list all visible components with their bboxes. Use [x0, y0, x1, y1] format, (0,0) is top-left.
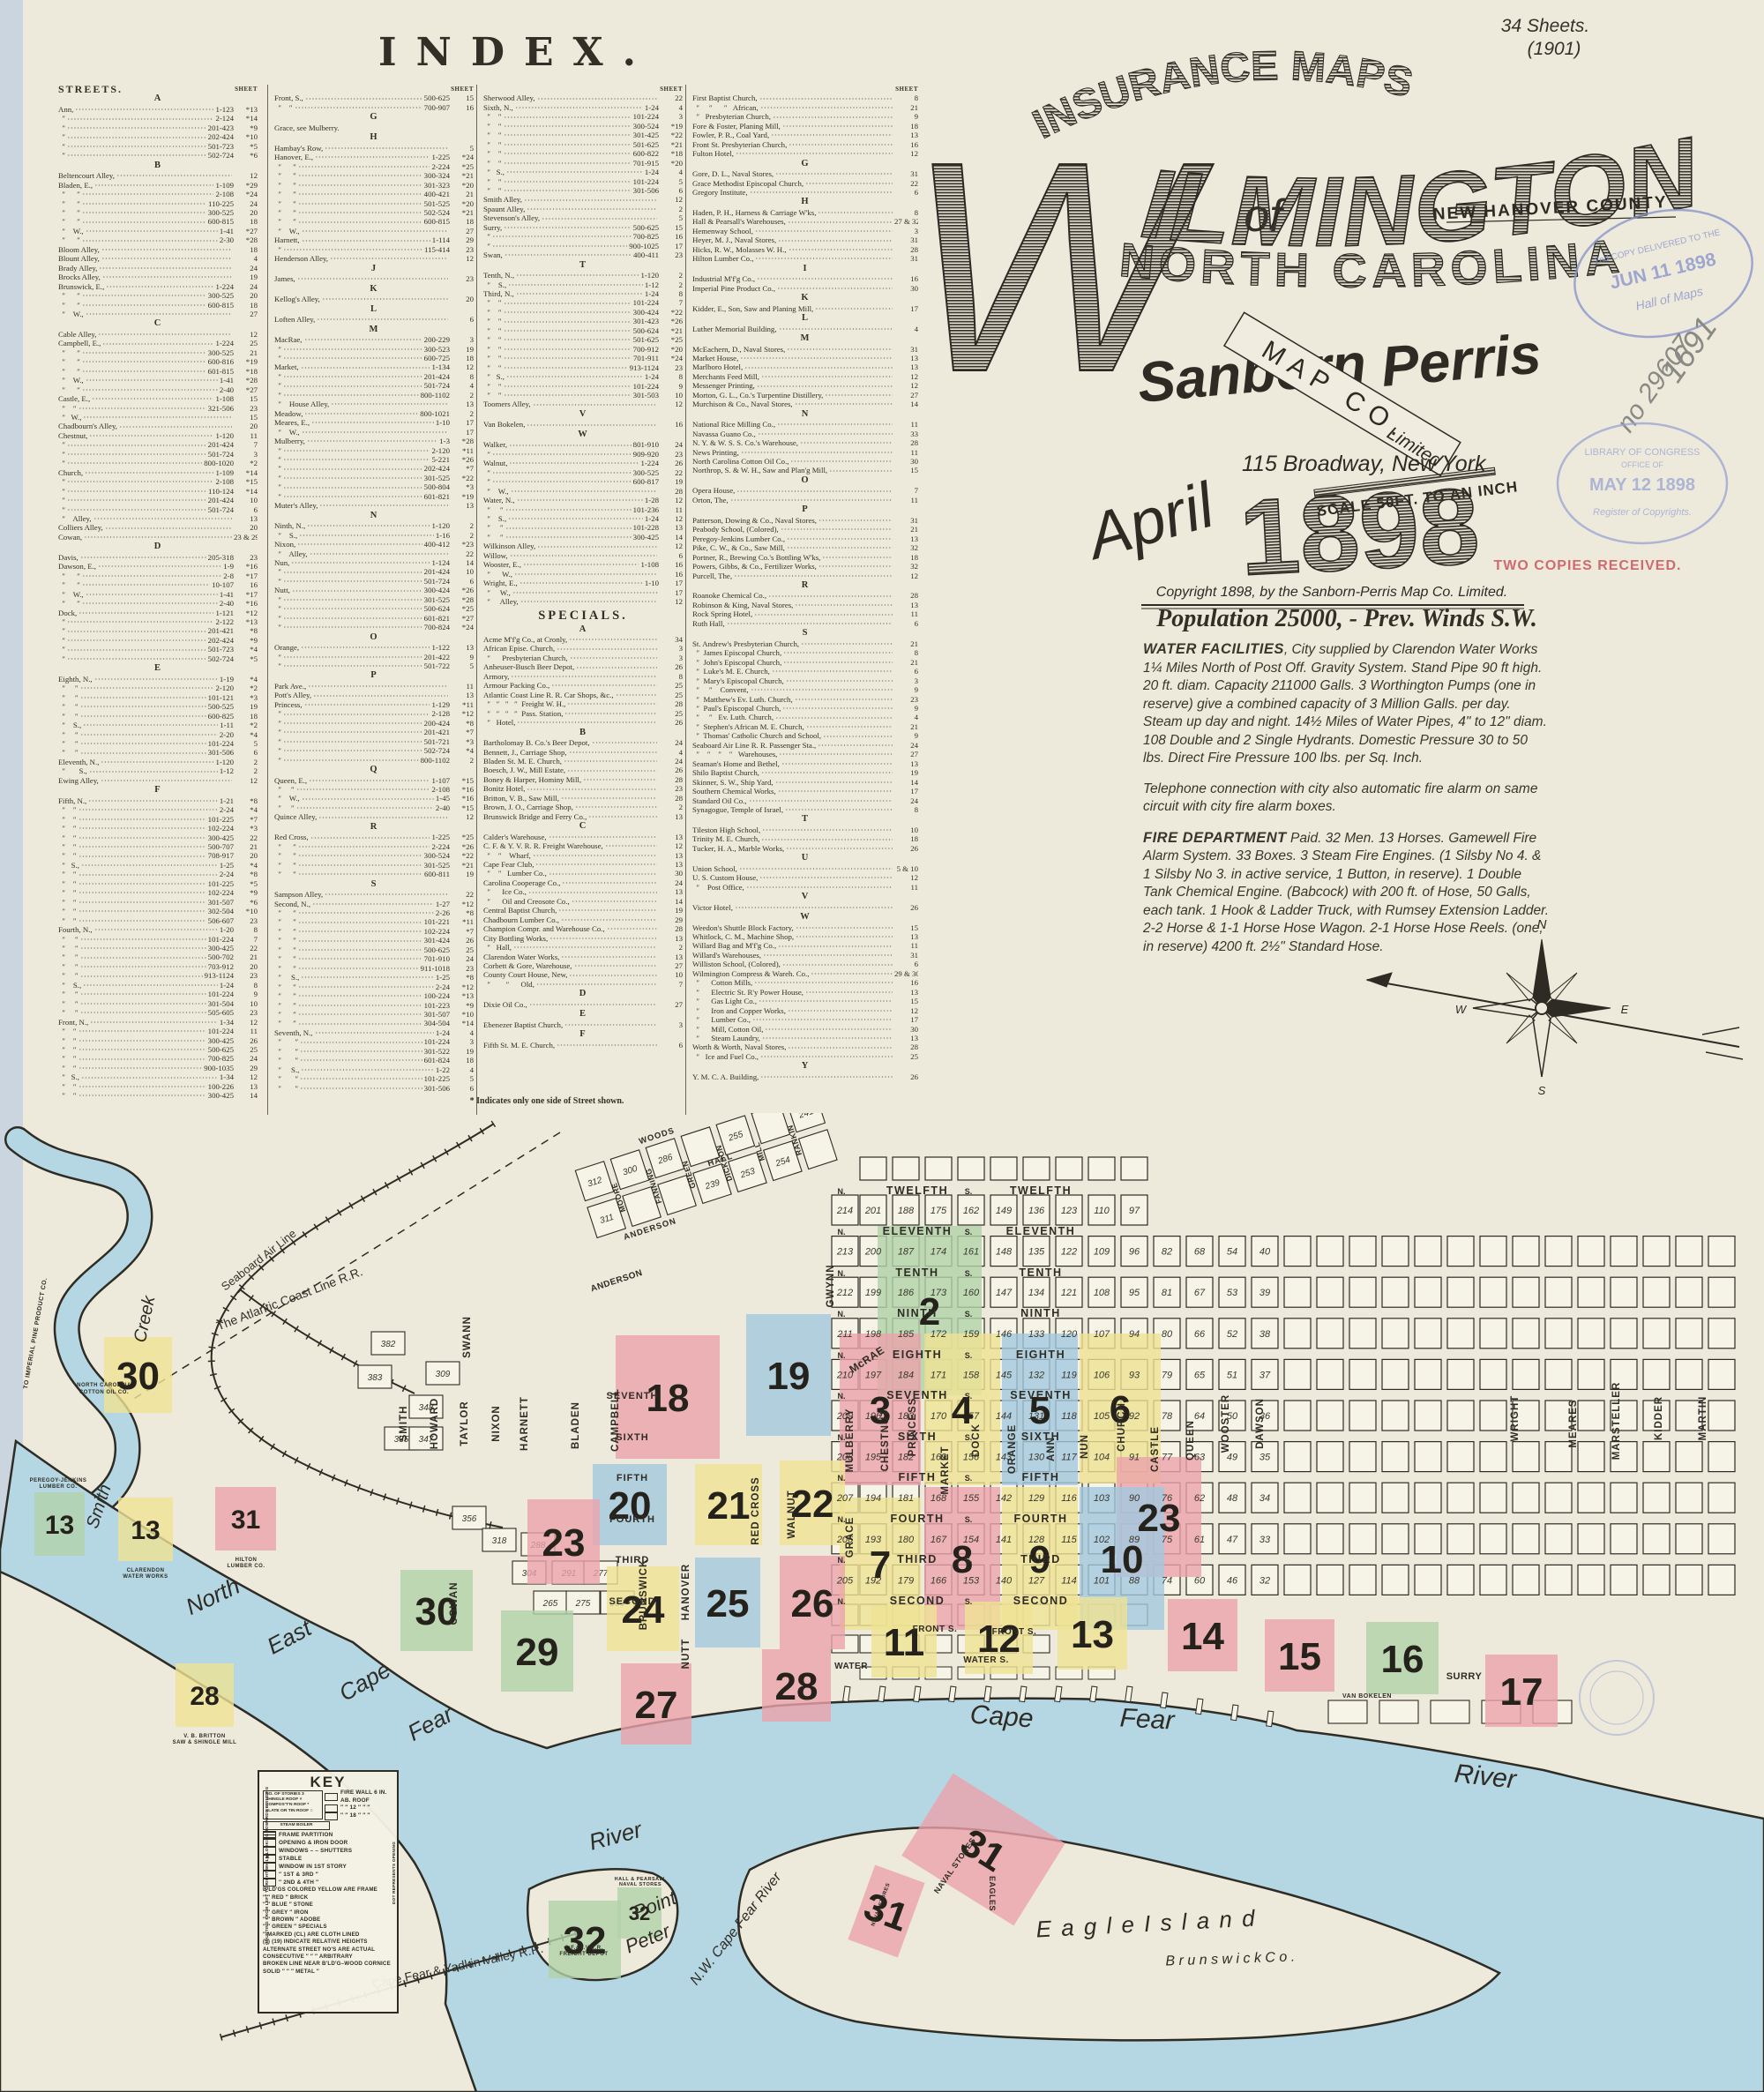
index-entry: ″ Oil and Creosote Co.,14 [483, 897, 683, 906]
index-entry: ″ ″300-42526 [58, 1036, 258, 1045]
city-block [1578, 1277, 1604, 1307]
city-block [1545, 1237, 1572, 1266]
svg-text:OFFICE OF: OFFICE OF [1621, 460, 1663, 469]
city-block [1480, 1442, 1506, 1472]
index-entry: ″ S.,1-244 [483, 168, 683, 176]
city-block [1382, 1401, 1409, 1431]
sheet-number-17: 17 [1500, 1670, 1543, 1714]
street-direction-s: S. [965, 1474, 973, 1483]
map-feature-label: ANDERSON [589, 1268, 644, 1294]
city-block [1415, 1442, 1441, 1472]
map-feature-label: C.F.&Y.V.R.R. [564, 1946, 603, 1951]
street-label: FOURTH [890, 1513, 944, 1525]
city-block [1480, 1277, 1506, 1307]
index-entry: Atlantic Coast Line R. R. Car Shops, &c.… [483, 691, 683, 699]
svg-text:Hall of Maps: Hall of Maps [1634, 284, 1704, 313]
street-label: TWELFTH [886, 1184, 948, 1197]
key-steam-boiler: STEAM BOILER [263, 1821, 330, 1830]
street-label-vertical: DAWSON [1255, 1398, 1266, 1449]
index-entry: ″ Ice and Fuel Co.,25 [692, 1052, 918, 1061]
index-entry: North Carolina Cotton Oil Co.,30 [692, 457, 918, 466]
index-entry: ″ W.,27 [58, 310, 258, 318]
street-label: SEVENTH [1010, 1389, 1072, 1401]
key-line: (5) (19) INDICATE RELATIVE HEIGHTS [263, 1939, 393, 1946]
key-row: ″ 2ND & 4TH ″ [263, 1879, 393, 1887]
index-entry: ″ ″300-524*22 [274, 851, 474, 860]
title-block: 34 Sheets. (1901) INSURANCE MAPS of W IL… [891, 0, 1764, 617]
key-title: KEY [263, 1774, 393, 1789]
index-entry: ″ ″101-2255 [274, 1074, 474, 1083]
index-entry: ″ ″ ″ ″ Pass. Station,25 [483, 709, 683, 718]
city-block [1676, 1277, 1702, 1307]
index-entry: ″201-42410 [274, 567, 474, 576]
city-block [1349, 1319, 1376, 1349]
index-entry: ″ ″101-2247 [58, 935, 258, 944]
index-entry: Seaboard Air Line R. R. Passenger Sta.,2… [692, 741, 918, 750]
street-label: THIRD [1020, 1553, 1061, 1565]
street-direction-n: N. [838, 1392, 846, 1401]
sheet-number-23: 23 [542, 1521, 586, 1565]
index-entry: ″ W.,28 [483, 487, 683, 496]
sheet-number-28: 28 [190, 1682, 219, 1711]
map-key: KEY NO. OF STORIES 3SHINGLE ROOF ×COMPOS… [258, 1770, 399, 2014]
city-block [1643, 1359, 1670, 1389]
city-block [1611, 1277, 1637, 1307]
index-entry: ″ ″102-224*9 [58, 888, 258, 897]
city-block [1317, 1565, 1343, 1595]
sheet-number-25: 25 [706, 1582, 750, 1625]
index-entry: ″909-92023 [483, 450, 683, 459]
water-telephone: Telephone connection with city also auto… [1143, 781, 1551, 817]
index-entry: ″ ″400-42121 [274, 190, 474, 198]
suburb-block [751, 1113, 789, 1144]
block-number: 194 [865, 1493, 881, 1504]
index-entry: ″ S.,1-162 [274, 531, 474, 540]
street-label: FIFTH [899, 1471, 937, 1483]
index-entry: ″301-525*22 [274, 474, 474, 482]
index-entry: ″ ″500-70221 [58, 953, 258, 961]
suburb-grid: 312300286255241311239253254MOOREFANNINGG… [572, 1113, 841, 1251]
block-number: 120 [1061, 1329, 1078, 1340]
city-block [1382, 1319, 1409, 1349]
city-block [1447, 1442, 1474, 1472]
city-block [1317, 1277, 1343, 1307]
index-entry: ″ ″502-524*21 [274, 208, 474, 217]
index-entry: ″202-424*7 [274, 464, 474, 473]
index-entry: ″ ″600-82518 [58, 712, 258, 721]
index-entry: Trinity M. E. Church,18 [692, 834, 918, 843]
index-entry: ″ ″110-22524 [58, 199, 258, 208]
city-block [1643, 1277, 1670, 1307]
index-entry: ″201-4248 [274, 372, 474, 381]
index-entry: ″201-4229 [274, 653, 474, 661]
index-entry: ″ ″2-30*28 [58, 235, 258, 244]
water-facilities: WATER FACILITIES, City supplied by Clare… [1143, 640, 1551, 768]
city-block [1088, 1157, 1115, 1180]
street-label-vertical: GWYNN [826, 1264, 836, 1307]
index-entry: Chestnut,1-12011 [58, 431, 258, 440]
sheet-number-10: 10 [1101, 1538, 1144, 1581]
city-block [1513, 1565, 1539, 1595]
index-entry: ″ ″ ″ ″ Warehouses,27 [692, 750, 918, 758]
block-number: 68 [1194, 1247, 1206, 1258]
index-entry: Nutt,300-424*26 [274, 586, 474, 594]
index-entry: Union School,5 & 10 [692, 864, 918, 873]
index-entry: Ann,1-123*13 [58, 105, 258, 114]
sheet-number-7: 7 [870, 1543, 891, 1587]
index-entry: Gore, D. L., Naval Stores,31 [692, 169, 918, 178]
index-entry: ″501-721*3 [274, 737, 474, 746]
block-number: 188 [898, 1206, 915, 1216]
block-number: 80 [1162, 1329, 1173, 1340]
city-block [1379, 1700, 1418, 1723]
index-entry: ″201-421*7 [274, 728, 474, 736]
index-entry: Loften Alley,6 [274, 315, 474, 324]
index-entry: Fifth, N.,1-21*8 [58, 796, 258, 805]
index-entry: ″ ″301-5066 [58, 748, 258, 757]
index-entry: Navassa Guano Co.,33 [692, 430, 918, 438]
index-section-header: N [692, 409, 918, 421]
street-label-vertical: TAYLOR [460, 1401, 470, 1446]
index-entry: Peabody School, (Colored),21 [692, 525, 918, 534]
index-entry: ″ Iron and Copper Works,12 [692, 1006, 918, 1015]
street-label-vertical: COWAN [449, 1581, 460, 1625]
index-entry: Dawson, E.,1-9*16 [58, 562, 258, 571]
city-block [1415, 1401, 1441, 1431]
index-entry: ″ ″300-42522 [58, 944, 258, 953]
index-section-header: F [58, 785, 258, 796]
index-entry: Armour Packing Co.,25 [483, 681, 683, 690]
index-entry: ″ ″500-624*21 [483, 326, 683, 335]
index-section-header: P [274, 670, 474, 682]
city-block [1284, 1319, 1311, 1349]
city-block [1382, 1524, 1409, 1554]
city-block [1676, 1237, 1702, 1266]
street-direction-s: S. [965, 1228, 973, 1237]
sanborn-map-sheet: { "header": { "sheets_note": "34 Sheets.… [0, 0, 1764, 2092]
index-section-header: O [274, 632, 474, 644]
street-label: FOURTH [1013, 1513, 1067, 1525]
index-entry: ″ ″ ″ ″ Freight W. H.,28 [483, 699, 683, 708]
index-entry: ″ ″2-24*12 [274, 982, 474, 991]
city-block [1382, 1277, 1409, 1307]
index-entry: National Rice Milling Co.,11 [692, 420, 918, 429]
city-block [1447, 1237, 1474, 1266]
map-feature-label: FRONT S. [913, 1625, 958, 1634]
street-direction-n: N. [838, 1187, 846, 1196]
index-entry: ″300-52522 [483, 468, 683, 477]
city-block [1578, 1442, 1604, 1472]
city-block [1513, 1524, 1539, 1554]
street-direction-s: S. [965, 1392, 973, 1401]
index-entry: Second, N.,1-27*12 [274, 900, 474, 908]
block-number: 62 [1194, 1493, 1205, 1504]
block-number: 115 [1061, 1535, 1077, 1545]
street-direction-s: S. [965, 1187, 973, 1196]
sheet-number-13: 13 [45, 1511, 74, 1540]
city-block [1415, 1277, 1441, 1307]
index-entry: ″ ″301-52219 [274, 1047, 474, 1056]
street-label: TWELFTH [1010, 1184, 1072, 1197]
index-entry: ″ ″300-52520 [58, 291, 258, 300]
street-label-vertical: DOCK [971, 1423, 982, 1457]
pier [1125, 1686, 1132, 1702]
copyright-line: Copyright 1898, by the Sanborn-Perris Ma… [1156, 585, 1507, 600]
index-section-header: C [58, 318, 258, 330]
index-entry: Meadow,800-10212 [274, 409, 474, 418]
index-entry: Ewing Alley,12 [58, 776, 258, 785]
block-number: 213 [836, 1247, 854, 1258]
index-entry: Southern Chemical Works,17 [692, 787, 918, 796]
index-entry: Sherwood Alley,22 [483, 93, 683, 102]
block-number: 33 [1259, 1535, 1271, 1545]
index-entry: Clarendon Water Works,13 [483, 953, 683, 961]
index-entry: Worth & Worth, Naval Stores,28 [692, 1042, 918, 1051]
block-number: 200 [864, 1247, 882, 1258]
index-entry: Surry,500-62515 [483, 223, 683, 232]
city-block [1349, 1401, 1376, 1431]
index-entry: ″800-11022 [274, 391, 474, 400]
index-entry: ″ ″913-112423 [483, 363, 683, 372]
index-entry: ″ W.,17 [483, 588, 683, 597]
street-label-vertical: NUTT [681, 1639, 691, 1670]
block-number: 77 [1162, 1453, 1173, 1463]
key-row: ″ ″ 18 ″ ″ ″ [325, 1812, 393, 1820]
block-number: 149 [996, 1206, 1012, 1216]
sheet-number-19: 19 [767, 1355, 811, 1398]
index-entry: Walker,801-91024 [483, 440, 683, 449]
block-number: 67 [1194, 1288, 1206, 1298]
city-block [1676, 1483, 1702, 1513]
sheet-number-13: 13 [1071, 1613, 1114, 1656]
index-entry: ″ ″101-22813 [483, 523, 683, 532]
index-entry: Dock,1-121*12 [58, 609, 258, 617]
index-entry: ″ ″700-82524 [58, 1054, 258, 1063]
index-section-header: J [274, 264, 474, 275]
index-entry: ″ Mary's Episcopal Church,3 [692, 676, 918, 685]
index-section-header: A [58, 93, 258, 105]
index-entry: ″ ″600-822*18 [483, 149, 683, 158]
index-entry: ″ ″301-507*10 [274, 1010, 474, 1019]
index-section-header: K [274, 284, 474, 295]
index-entry: Hilton Lumber Co.,31 [692, 254, 918, 263]
city-block [1545, 1277, 1572, 1307]
index-entry: Victor Hotel,26 [692, 903, 918, 912]
key-line: ″ ″ BROWN ″ ADOBE [263, 1916, 393, 1924]
index-section-header: T [483, 260, 683, 272]
block-number: 81 [1162, 1288, 1172, 1298]
index-entry: ″ W.,27 [274, 227, 474, 235]
index-section-header: N [274, 511, 474, 522]
index-entry: ″ Hotel,26 [483, 718, 683, 727]
street-label: SECOND [1013, 1595, 1068, 1607]
block-number: 309 [436, 1370, 451, 1379]
index-entry: ″ Cotton Mills,16 [692, 978, 918, 987]
index-entry: ″ ″501-625*25 [483, 335, 683, 344]
city-block [1056, 1157, 1082, 1180]
key-line: ″ ″ GREEN ″ SPECIALS [263, 1924, 393, 1931]
index-entry: Colliers Alley,20 [58, 523, 258, 532]
index-entry: ″ ″600-816*19 [58, 357, 258, 366]
index-entry: ″ Mill, Cotton Oil,30 [692, 1025, 918, 1034]
index-entry: Skinner, S. W., Ship Yard,14 [692, 778, 918, 787]
street-label-vertical: MEARES [1568, 1399, 1579, 1447]
index-entry: Smith Alley,12 [483, 195, 683, 204]
index-entry: ″ ″300-524*19 [483, 122, 683, 131]
index-entry: Sampson Alley,22 [274, 890, 474, 899]
index-entry: ″ ″102-224*7 [274, 927, 474, 936]
map-feature-label: EAGLES [988, 1876, 997, 1911]
index-entry: ″ ″ Ev. Luth. Church,4 [692, 713, 918, 721]
key-row: FRAME PARTITION [263, 1831, 393, 1839]
block-number: 171 [931, 1370, 946, 1380]
index-entry: James,23 [274, 274, 474, 283]
index-entry: Calder's Warehouse,13 [483, 833, 683, 841]
index-entry: ″ ″600-81119 [274, 870, 474, 878]
city-block [1708, 1237, 1735, 1266]
key-row: WINDOW IN 1ST STORY [263, 1863, 393, 1871]
city-block [1284, 1277, 1311, 1307]
block-number: 79 [1162, 1370, 1172, 1380]
city-block [1317, 1524, 1343, 1554]
city-block [1578, 1237, 1604, 1266]
street-label-vertical: GRACE [845, 1517, 856, 1558]
index-entry: ″2-128*12 [274, 709, 474, 718]
block-number: 114 [1061, 1575, 1077, 1586]
index-entry: ″ ″703-91220 [58, 962, 258, 971]
index-entry: Orton, The,11 [692, 496, 918, 504]
city-block [1415, 1565, 1441, 1595]
key-row: OPENING & IRON DOOR [263, 1839, 393, 1847]
block-number: 78 [1162, 1411, 1173, 1422]
index-entry: Toomers Alley,12 [483, 400, 683, 408]
city-block [1480, 1359, 1506, 1389]
street-label-vertical: CHESTNUT [880, 1409, 891, 1472]
city-block [1513, 1237, 1539, 1266]
index-entry: Boesch, J. W., Mill Estate,26 [483, 766, 683, 774]
index-entry: ″ Gas Light Co.,15 [692, 997, 918, 1005]
city-block [1382, 1565, 1409, 1595]
index-entry: ″502-724*4 [274, 746, 474, 755]
index-entry: ″ ″300-42514 [483, 533, 683, 542]
street-label-vertical: CAMPBELL [610, 1388, 621, 1452]
index-entry: Anheuser-Busch Beer Depot,26 [483, 662, 683, 671]
index-entry: ″ Alley,22 [274, 549, 474, 558]
city-block [1545, 1359, 1572, 1389]
index-entry: ″ S.,1-11*2 [58, 721, 258, 729]
index-entry: ″ S.,1-3412 [58, 1072, 258, 1081]
key-line: ″ ″ BLUE ″ STONE [263, 1901, 393, 1909]
block-number: 134 [1028, 1288, 1044, 1298]
index-entry: ″ ″900-103529 [58, 1064, 258, 1072]
index-entry: Fore & Foster, Planing Mill,18 [692, 122, 918, 131]
city-block [1382, 1237, 1409, 1266]
index-entry: ″ ″101-225*5 [58, 879, 258, 888]
index-entry: ″ ″101-2243 [274, 1037, 474, 1046]
block-number: 60 [1194, 1575, 1206, 1586]
index-entry: Grace Methodist Episcopal Church,22 [692, 179, 918, 188]
index-entry: ″ ″501-625*21 [483, 140, 683, 149]
map-feature-label: FREIGHT DEPOT [559, 1952, 608, 1957]
key-row: ″ 1ST & 3RD ″ [263, 1871, 393, 1879]
index-entry: ″ ″2-26*8 [274, 908, 474, 917]
index-entry: Nun,1-12414 [274, 558, 474, 567]
city-block [1708, 1277, 1735, 1307]
street-label-vertical: QUEEN [1185, 1420, 1196, 1461]
index-entry: Gregory Institute,6 [692, 188, 918, 197]
index-entry: County Court House, New,10 [483, 970, 683, 979]
street-label-vertical: HOWARD [430, 1398, 440, 1449]
compass-w: W [1455, 1003, 1468, 1016]
index-entry: ″ S.,1-25*4 [58, 861, 258, 870]
index-sheet-header: SHEET [274, 85, 474, 93]
city-block [1447, 1401, 1474, 1431]
index-title: INDEX. [332, 30, 702, 75]
index-entry: ″ ″701-915*20 [483, 159, 683, 168]
block-number: 170 [931, 1411, 947, 1422]
index-entry: Third, N.,1-248 [483, 289, 683, 298]
index-section-header: S [274, 879, 474, 891]
index-entry: ″501-723*5 [58, 142, 258, 151]
index-section-header: H [692, 197, 918, 208]
sheet-number-27: 27 [635, 1684, 678, 1727]
atlantic-coast-line-rr [212, 1124, 503, 1528]
index-entry: ″ W.,1-41*27 [58, 227, 258, 235]
city-block [1676, 1442, 1702, 1472]
index-entry: Brunswick, E.,1-22424 [58, 282, 258, 291]
index-entry: ″ ″300-424*22 [483, 308, 683, 317]
index-entry: ″500-624*25 [274, 604, 474, 613]
index-entry: ″ W.,1-45*16 [274, 794, 474, 803]
city-block [1480, 1524, 1506, 1554]
index-entry: Front, N.,1-3412 [58, 1018, 258, 1027]
index-entry: Muter's Alley,13 [274, 501, 474, 510]
street-direction-s: S. [965, 1597, 973, 1606]
index-entry: ″ ″600-81518 [274, 217, 474, 226]
index-entry: Bladen St. M. E. Church,24 [483, 757, 683, 766]
street-label-vertical: PRINCESS [908, 1398, 918, 1457]
sheet-number-16: 16 [1381, 1638, 1424, 1681]
street-direction-s: S. [965, 1310, 973, 1319]
street-label-vertical: ORANGE [1007, 1424, 1018, 1474]
svg-text:Register of Copyrights.: Register of Copyrights. [1593, 507, 1692, 518]
block-number: 119 [1061, 1370, 1077, 1380]
index-entry: ″ ″100-224*13 [274, 991, 474, 1000]
city-block [1578, 1483, 1604, 1513]
index-section-header: D [58, 542, 258, 553]
index-section-header: Q [274, 765, 474, 776]
sheet-number-26: 26 [791, 1582, 834, 1625]
stamp-library-of-congress: LIBRARY OF CONGRESS OFFICE OF MAY 12 189… [1558, 423, 1727, 543]
city-block [1708, 1401, 1735, 1431]
sheet-number-14: 14 [1181, 1615, 1224, 1658]
street-label-vertical: BRUNSWICK [639, 1559, 649, 1631]
street-label-vertical: SWANN [462, 1316, 473, 1358]
index-section-header: P [692, 504, 918, 516]
block-number: 145 [996, 1370, 1013, 1380]
city-block [1349, 1483, 1376, 1513]
city-block [1447, 1524, 1474, 1554]
map-feature-label: LUMBER CO. [40, 1484, 78, 1490]
block-number: 107 [1094, 1329, 1110, 1340]
city-block [1611, 1483, 1637, 1513]
index-entry: Eighth, N.,1-19*4 [58, 675, 258, 684]
street-label-vertical: ANN [1046, 1437, 1057, 1461]
index-entry: Central Baptist Church,19 [483, 906, 683, 915]
street-label: FIFTH [1022, 1471, 1060, 1483]
index-entry: Patterson, Dowing & Co., Naval Stores,31 [692, 516, 918, 525]
index-entry: Y. M. C. A. Building,26 [692, 1072, 918, 1081]
